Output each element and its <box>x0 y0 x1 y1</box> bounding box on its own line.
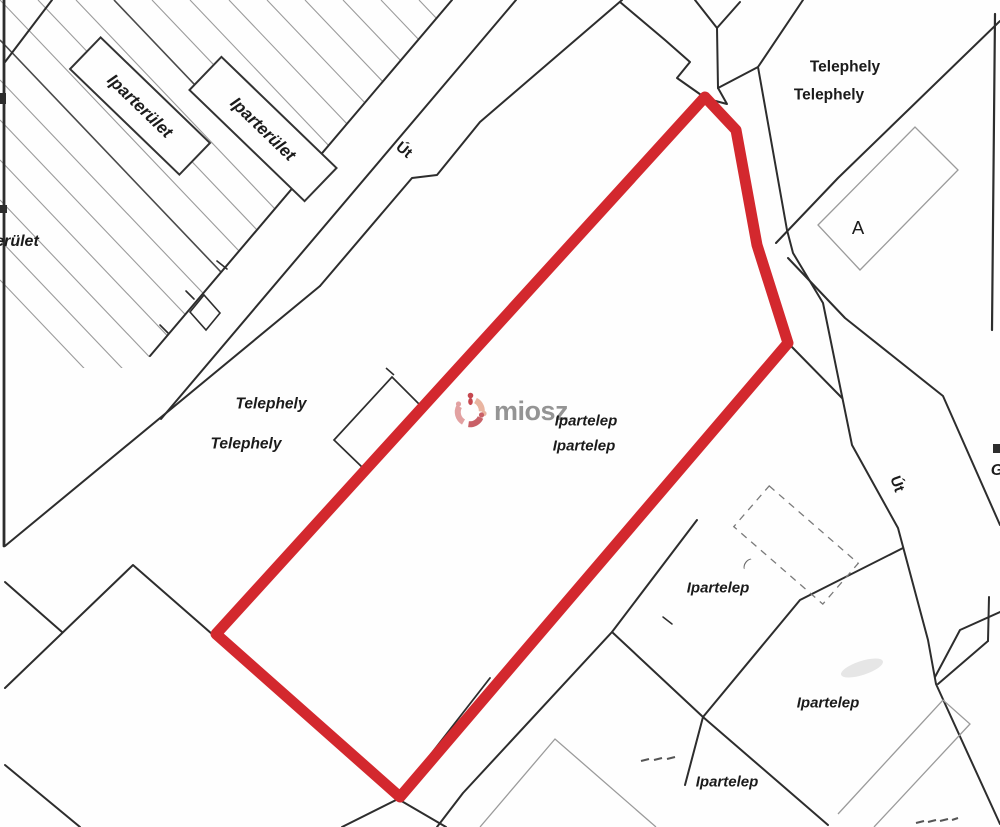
small-building-outline <box>190 295 220 330</box>
dash-marks <box>641 757 958 823</box>
miosz-logo-icon <box>451 391 489 431</box>
label-ipartelep-5: Ipartelep <box>696 775 759 790</box>
label-telephely-top-2: Telephely <box>794 87 864 103</box>
label-ipartelep-1: Ipartelep <box>555 414 618 429</box>
label-ipartelep-4: Ipartelep <box>797 696 860 711</box>
label-iparterulet-partial: erület <box>0 234 39 250</box>
label-ipartelep-3: Ipartelep <box>687 581 750 596</box>
highlighted-parcel-boundary <box>216 97 788 797</box>
building-corner-tick <box>386 368 394 375</box>
label-g-partial: G <box>991 463 1000 479</box>
dashed-parcel-outline <box>734 486 858 604</box>
watermark-miosz: miosz <box>451 391 568 431</box>
label-parcel-a: A <box>852 219 864 238</box>
faint-smudge <box>839 655 885 682</box>
label-telephely-top-1: Telephely <box>810 59 880 75</box>
label-ipartelep-2: Ipartelep <box>553 439 616 454</box>
label-telephely-mid-1: Telephely <box>236 396 307 412</box>
cadastral-map: miosz erület Iparterület Iparterület Út … <box>0 0 1000 827</box>
label-telephely-mid-2: Telephely <box>211 436 282 452</box>
